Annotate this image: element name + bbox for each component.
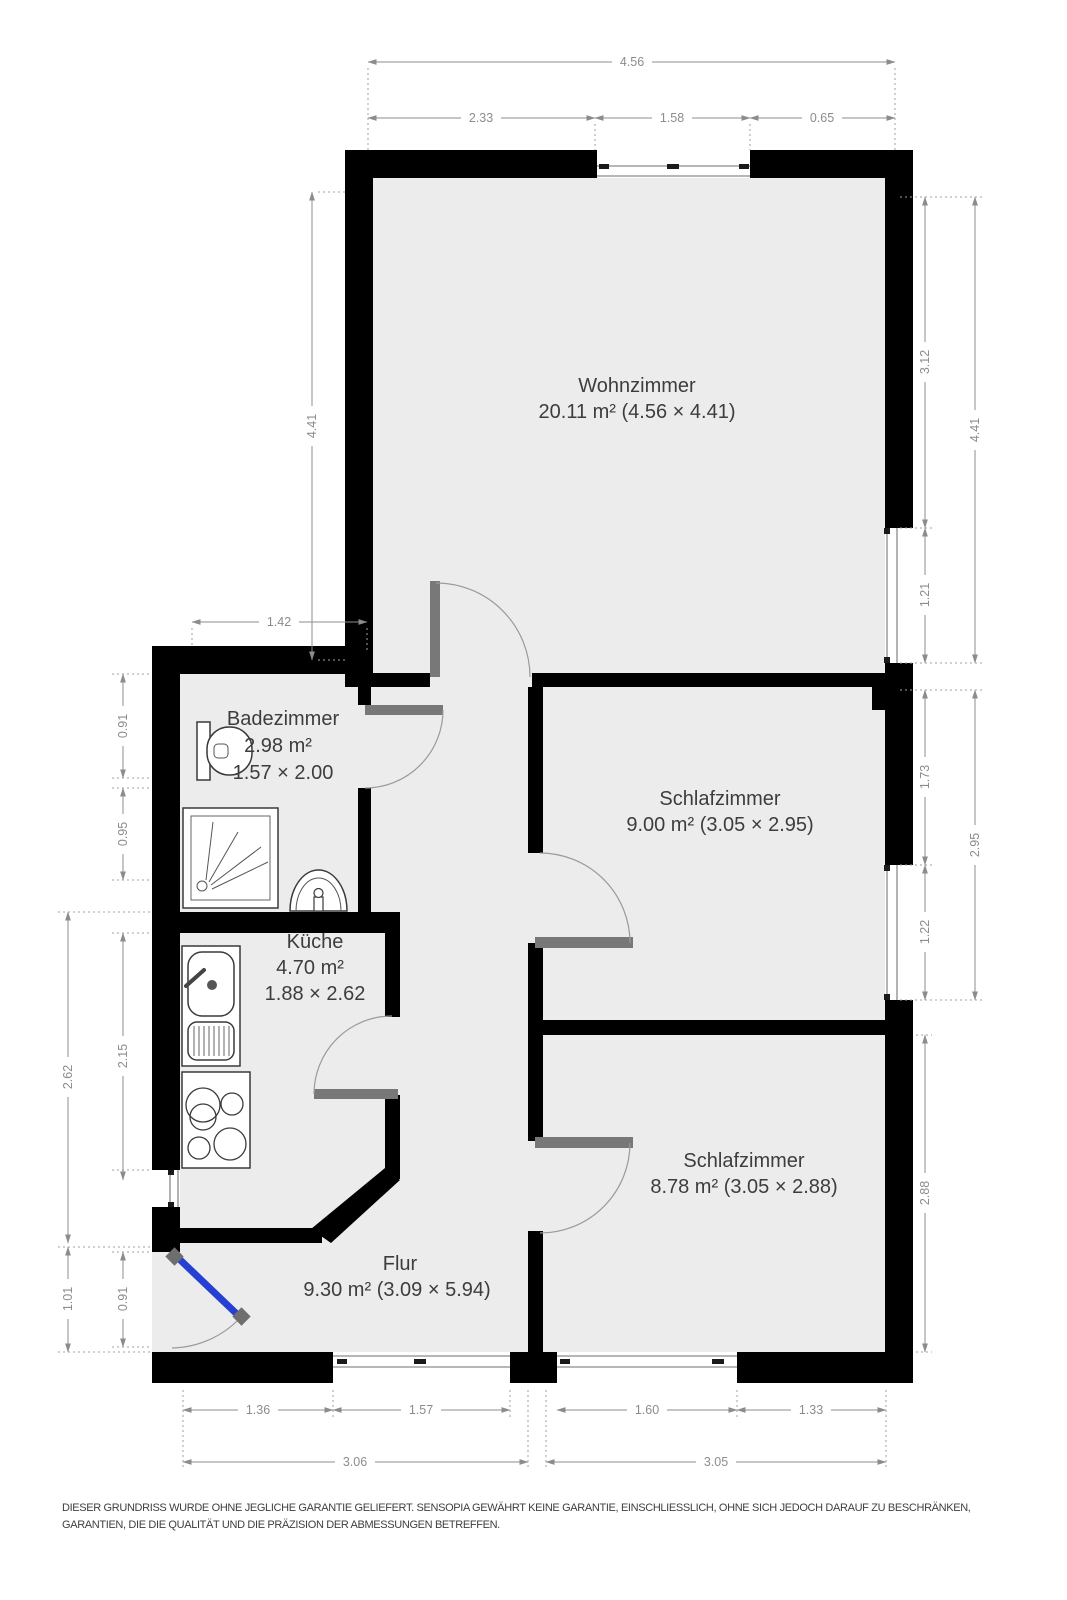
svg-text:1.57 × 2.00: 1.57 × 2.00	[233, 762, 334, 784]
svg-text:3.12: 3.12	[918, 350, 932, 374]
svg-text:Wohnzimmer: Wohnzimmer	[578, 375, 696, 397]
stove-icon	[182, 1072, 250, 1168]
svg-text:Küche: Küche	[287, 931, 344, 953]
kitchen-fixtures	[182, 946, 250, 1168]
dim-right-wall-upper: 3.12	[917, 197, 933, 528]
svg-text:Schlafzimmer: Schlafzimmer	[683, 1150, 804, 1172]
floor-plan-page: 4.56 2.33 1.58 0.65 4.41 1.42	[0, 0, 1067, 1600]
dim-left-bad-width: 1.42	[192, 614, 367, 630]
svg-text:1.01: 1.01	[61, 1287, 75, 1311]
svg-text:1.88 × 2.62: 1.88 × 2.62	[265, 983, 366, 1005]
svg-text:2.62: 2.62	[61, 1065, 75, 1089]
svg-text:20.11 m² (4.56 × 4.41): 20.11 m² (4.56 × 4.41)	[539, 401, 736, 423]
svg-text:Badezimmer: Badezimmer	[227, 708, 340, 730]
dim-left-bad-lower: 0.95	[115, 788, 131, 880]
dim-left-wohnzimmer: 4.41	[304, 192, 320, 660]
svg-text:3.06: 3.06	[343, 1455, 367, 1469]
svg-text:8.78 m² (3.05 × 2.88): 8.78 m² (3.05 × 2.88)	[650, 1176, 837, 1198]
dim-bottom-left-total: 3.06	[183, 1454, 528, 1470]
svg-text:1.57: 1.57	[409, 1403, 433, 1417]
svg-text:1.21: 1.21	[918, 583, 932, 607]
dim-top-right: 0.65	[750, 110, 895, 126]
svg-text:1.22: 1.22	[918, 920, 932, 944]
svg-text:0.65: 0.65	[810, 111, 834, 125]
svg-text:Schlafzimmer: Schlafzimmer	[659, 788, 780, 810]
shower-icon	[183, 808, 278, 908]
dim-left-kueche-outer: 2.62	[60, 912, 76, 1243]
svg-text:1.58: 1.58	[660, 111, 684, 125]
dim-bottom-schlaf-wall: 1.33	[737, 1402, 886, 1418]
disclaimer-text: DIESER GRUNDRISS WURDE OHNE JEGLICHE GAR…	[62, 1500, 1022, 1534]
window-south-flur	[333, 1352, 510, 1383]
window-south-schlafzimmer	[557, 1352, 737, 1383]
dim-right-window-wohnzimmer: 1.21	[917, 528, 933, 663]
dim-right-window-schlafzimmer: 1.22	[917, 865, 933, 1000]
dim-right-wohnzimmer-total: 4.41	[967, 197, 983, 663]
svg-text:4.41: 4.41	[305, 414, 319, 438]
dim-bottom-flur-window: 1.57	[333, 1402, 510, 1418]
window-north	[597, 150, 750, 178]
svg-text:Flur: Flur	[383, 1253, 418, 1275]
dim-left-entry-door: 0.91	[115, 1252, 131, 1347]
svg-text:1.60: 1.60	[635, 1403, 659, 1417]
svg-text:4.56: 4.56	[620, 55, 644, 69]
svg-text:4.41: 4.41	[968, 418, 982, 442]
svg-text:4.70 m²: 4.70 m²	[276, 957, 344, 979]
dim-top-total: 4.56	[368, 54, 895, 70]
dim-bottom-right-total: 3.05	[546, 1454, 886, 1470]
dim-right-schlafzimmer-total: 2.95	[967, 690, 983, 1000]
window-east-schlafzimmer	[884, 865, 913, 1000]
svg-text:2.98 m²: 2.98 m²	[244, 735, 312, 757]
svg-text:2.33: 2.33	[469, 111, 493, 125]
svg-text:0.95: 0.95	[116, 822, 130, 846]
svg-text:2.88: 2.88	[918, 1181, 932, 1205]
window-west-kueche	[152, 1170, 180, 1207]
dim-right-wall-mid: 1.73	[917, 690, 933, 865]
dim-top-window: 1.58	[595, 110, 750, 126]
svg-text:3.05: 3.05	[704, 1455, 728, 1469]
dim-right-schlafzimmer-unten: 2.88	[917, 1035, 933, 1352]
svg-text:2.15: 2.15	[116, 1044, 130, 1068]
dim-left-kueche-inner: 2.15	[115, 933, 131, 1180]
floor-plan-svg: 4.56 2.33 1.58 0.65 4.41 1.42	[0, 0, 1067, 1600]
dim-left-entry-outer: 1.01	[60, 1247, 76, 1352]
svg-text:0.91: 0.91	[116, 714, 130, 738]
svg-text:1.33: 1.33	[799, 1403, 823, 1417]
svg-text:9.00 m² (3.05 × 2.95): 9.00 m² (3.05 × 2.95)	[626, 814, 813, 836]
kitchen-sink-icon	[182, 946, 240, 1066]
svg-text:0.91: 0.91	[116, 1287, 130, 1311]
svg-text:2.95: 2.95	[968, 833, 982, 857]
dim-bottom-schlaf-window: 1.60	[557, 1402, 737, 1418]
dim-bottom-flur-wall: 1.36	[183, 1402, 333, 1418]
svg-text:1.36: 1.36	[246, 1403, 270, 1417]
dim-left-bad-upper: 0.91	[115, 674, 131, 778]
svg-text:1.73: 1.73	[918, 765, 932, 789]
window-east-wohnzimmer	[884, 528, 913, 663]
svg-text:1.42: 1.42	[267, 615, 291, 629]
dim-top-left: 2.33	[368, 110, 595, 126]
svg-text:9.30 m² (3.09 × 5.94): 9.30 m² (3.09 × 5.94)	[303, 1279, 490, 1301]
